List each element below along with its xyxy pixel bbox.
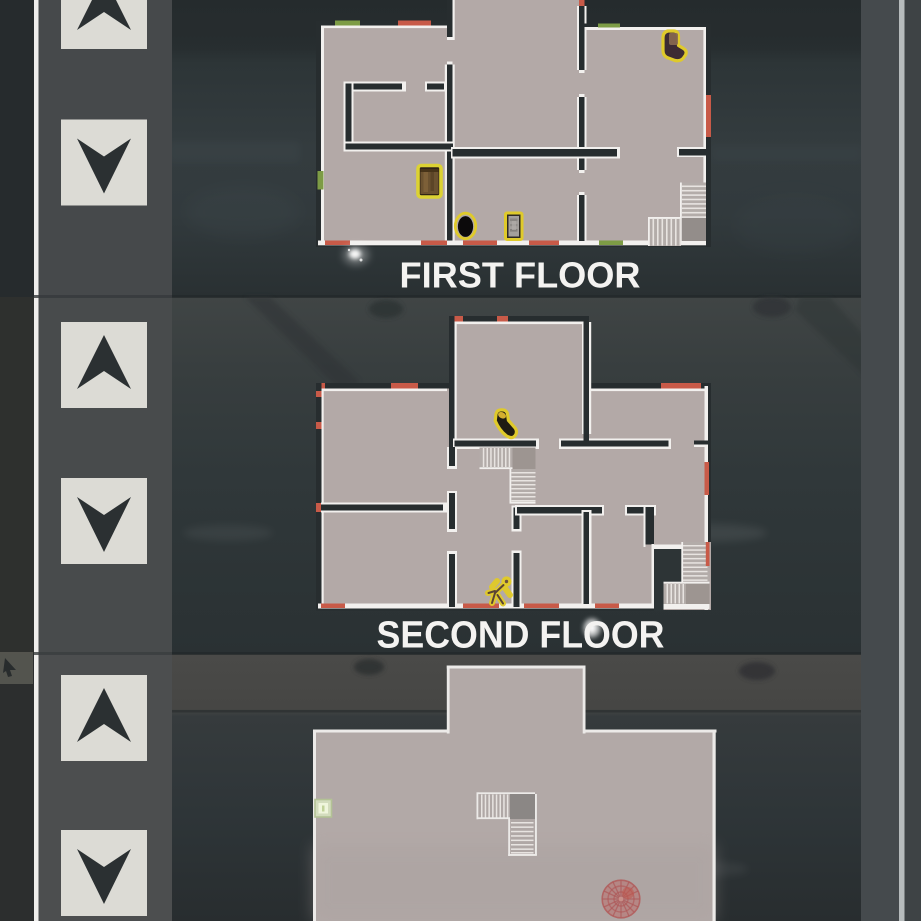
svg-text:SECOND FLOOR: SECOND FLOOR: [377, 615, 665, 657]
svg-text:FIRST FLOOR: FIRST FLOOR: [400, 255, 641, 296]
